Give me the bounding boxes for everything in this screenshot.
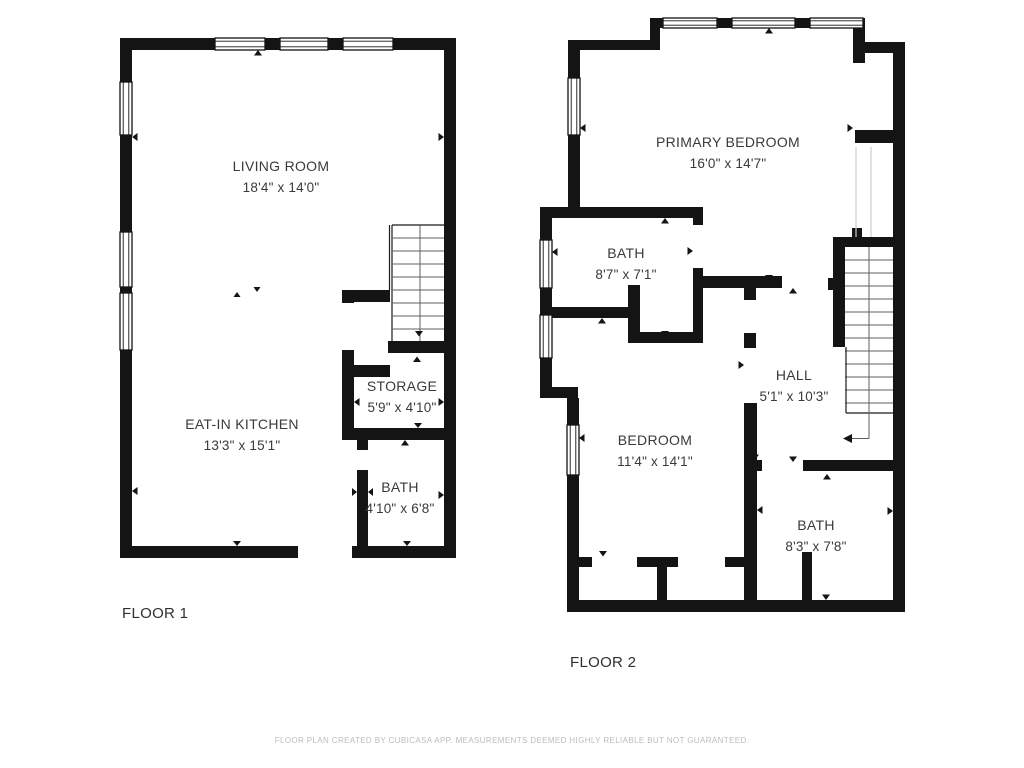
- floor1-tag: FLOOR 1: [122, 605, 188, 622]
- floor2-walls: [540, 18, 905, 612]
- room-name: STORAGE: [367, 376, 437, 397]
- room-dimensions: 8'3" x 7'8": [785, 536, 846, 557]
- window: [663, 18, 717, 28]
- room-label-eat-in-kitchen: EAT-IN KITCHEN 13'3" x 15'1": [185, 414, 299, 456]
- window: [120, 232, 132, 287]
- room-label-storage: STORAGE 5'9" x 4'10": [367, 376, 437, 418]
- window: [810, 18, 863, 28]
- room-name: BEDROOM: [617, 430, 693, 451]
- stairs-floor2: [843, 147, 893, 443]
- room-label-living-room: LIVING ROOM 18'4" x 14'0": [233, 156, 330, 198]
- room-name: BATH: [785, 515, 846, 536]
- window: [732, 18, 795, 28]
- room-dimensions: 4'10" x 6'8": [366, 498, 435, 519]
- window: [280, 38, 328, 50]
- room-dimensions: 11'4" x 14'1": [617, 451, 693, 472]
- stair-direction-arrow: [843, 413, 869, 443]
- window: [568, 78, 580, 135]
- window: [120, 82, 132, 135]
- room-name: HALL: [760, 365, 829, 386]
- room-name: LIVING ROOM: [233, 156, 330, 177]
- room-dimensions: 18'4" x 14'0": [233, 177, 330, 198]
- window: [215, 38, 265, 50]
- stairs-floor1: [390, 225, 445, 341]
- disclaimer-text: FLOOR PLAN CREATED BY CUBICASA APP. MEAS…: [0, 736, 1024, 745]
- window: [343, 38, 393, 50]
- room-name: BATH: [366, 477, 435, 498]
- room-name: EAT-IN KITCHEN: [185, 414, 299, 435]
- floor1-measure-markers: [132, 50, 444, 546]
- room-label-hall: HALL 5'1" x 10'3": [760, 365, 829, 407]
- window: [540, 240, 552, 288]
- room-name: BATH: [595, 243, 656, 264]
- room-label-bath-upper-floor2: BATH 8'7" x 7'1": [595, 243, 656, 285]
- window: [120, 293, 132, 350]
- room-label-bedroom: BEDROOM 11'4" x 14'1": [617, 430, 693, 472]
- room-dimensions: 5'9" x 4'10": [367, 397, 437, 418]
- room-dimensions: 16'0" x 14'7": [656, 153, 800, 174]
- room-dimensions: 5'1" x 10'3": [760, 386, 829, 407]
- room-dimensions: 13'3" x 15'1": [185, 435, 299, 456]
- room-name: PRIMARY BEDROOM: [656, 132, 800, 153]
- floorplan-svg: [0, 0, 1024, 768]
- room-label-bath-lower-floor2: BATH 8'3" x 7'8": [785, 515, 846, 557]
- floorplan-page: LIVING ROOM 18'4" x 14'0" EAT-IN KITCHEN…: [0, 0, 1024, 768]
- window: [567, 425, 579, 475]
- window: [540, 315, 552, 358]
- room-label-primary-bedroom: PRIMARY BEDROOM 16'0" x 14'7": [656, 132, 800, 174]
- room-dimensions: 8'7" x 7'1": [595, 264, 656, 285]
- floor2-tag: FLOOR 2: [570, 654, 636, 671]
- room-label-bath-floor1: BATH 4'10" x 6'8": [366, 477, 435, 519]
